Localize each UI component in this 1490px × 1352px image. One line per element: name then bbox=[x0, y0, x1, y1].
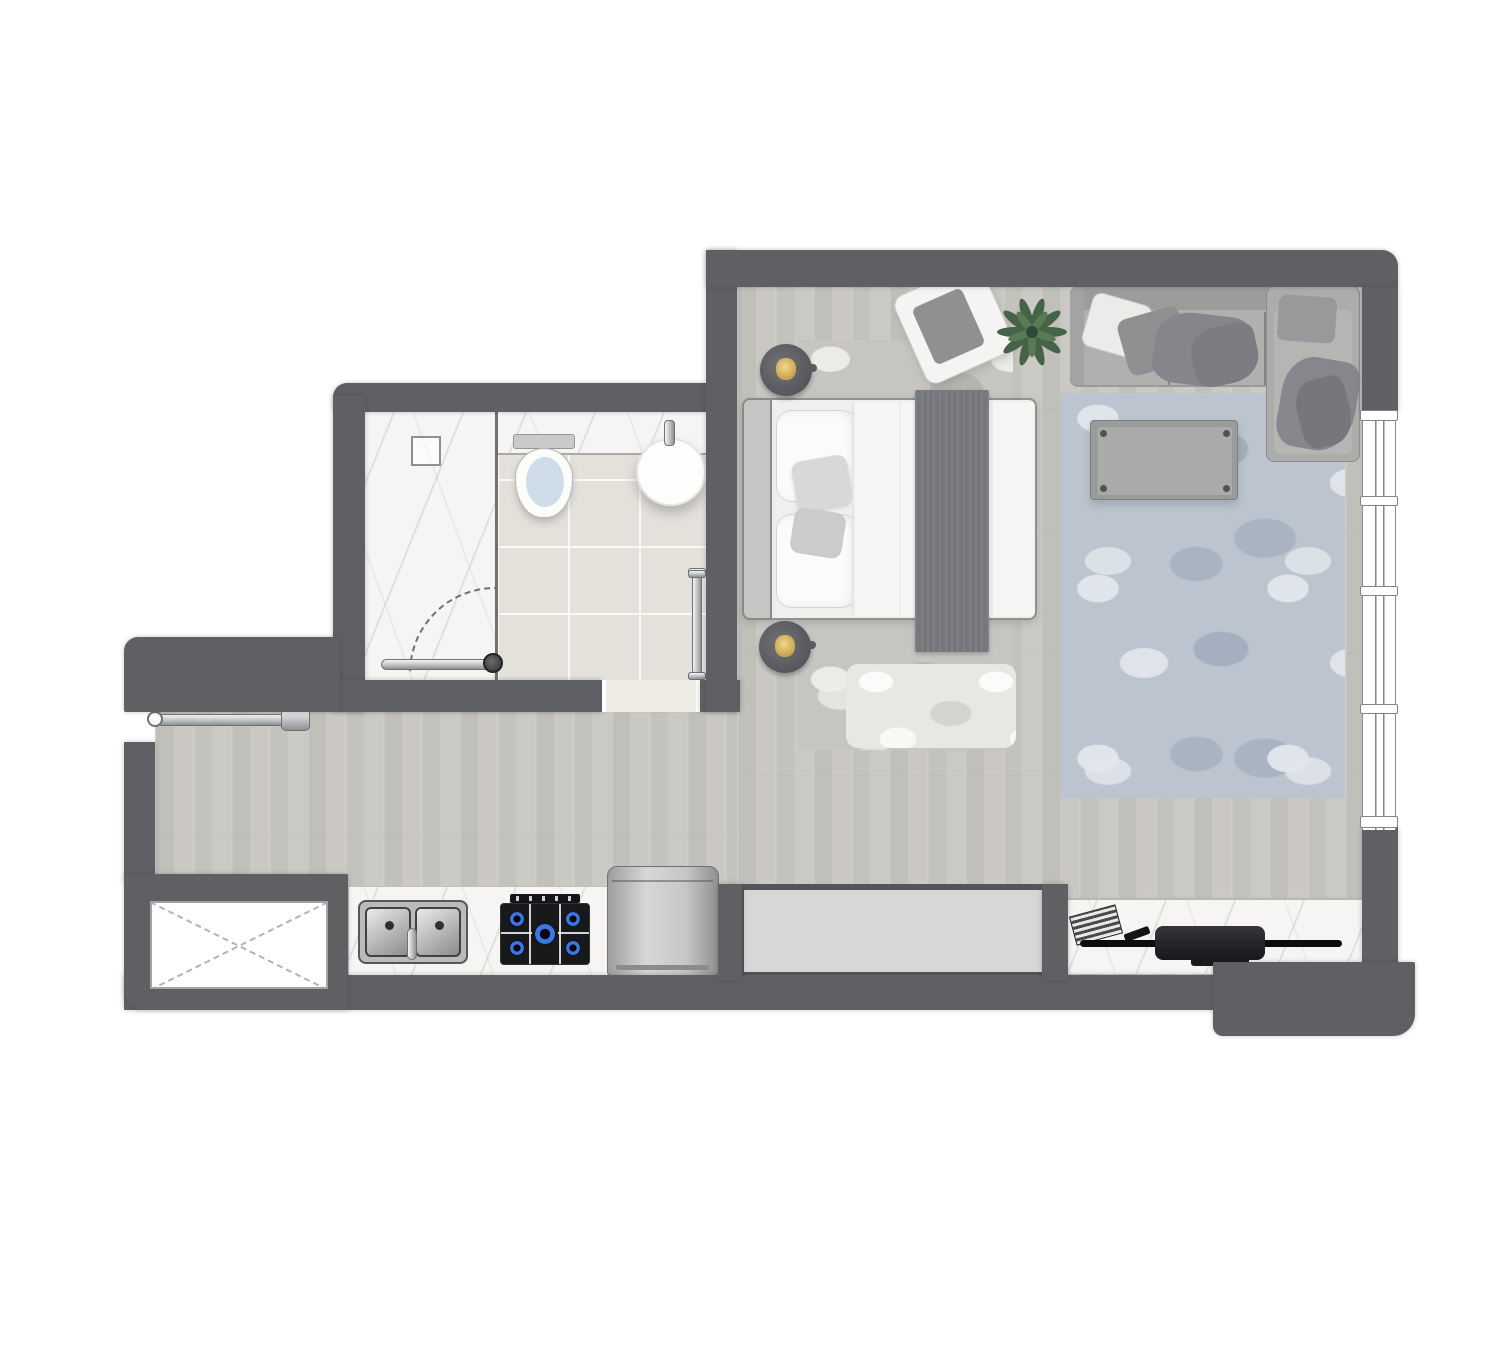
fridge-door-seam bbox=[612, 880, 713, 882]
sink-drain-icon bbox=[435, 921, 444, 930]
wall-left-lower bbox=[124, 742, 155, 882]
potted-plant bbox=[996, 296, 1068, 368]
lamp-bulb-icon bbox=[775, 635, 795, 657]
wall-right-lower bbox=[1362, 826, 1398, 970]
gas-hob bbox=[500, 903, 590, 965]
wall-bathroom-top bbox=[333, 383, 710, 412]
shower-door-bar bbox=[381, 659, 499, 670]
wardrobe-cabinet bbox=[738, 884, 1048, 978]
entry-door-end-cap bbox=[147, 711, 163, 727]
wall-hall-upper-block bbox=[124, 637, 340, 712]
sink-drain-icon bbox=[385, 921, 394, 930]
lamp-handle bbox=[804, 364, 817, 372]
chaise-pillow bbox=[1276, 294, 1337, 344]
bedside-lamp bbox=[759, 621, 811, 673]
hob-control-strip bbox=[510, 894, 580, 903]
armchair-cushion bbox=[911, 287, 986, 366]
lamp-bulb-icon bbox=[776, 358, 796, 380]
wall-bedroom-left bbox=[706, 250, 737, 712]
sheepskin-throw bbox=[846, 664, 1016, 748]
shower-drain-icon bbox=[411, 436, 441, 466]
wall-seg-console-left bbox=[1042, 884, 1068, 980]
fridge-base bbox=[616, 965, 709, 970]
sink-bowl bbox=[415, 907, 461, 957]
washbasin bbox=[636, 438, 706, 506]
wall-right-upper bbox=[1362, 287, 1398, 412]
coffee-table-top bbox=[1098, 427, 1232, 495]
basin-faucet-icon bbox=[664, 420, 675, 446]
bedside-lamp bbox=[760, 344, 812, 396]
burner-icon bbox=[564, 939, 582, 957]
table-bolt bbox=[1223, 485, 1230, 492]
television-body bbox=[1155, 926, 1265, 960]
kitchen-double-sink bbox=[358, 900, 468, 964]
window-mullion bbox=[1360, 816, 1398, 828]
bathroom-door-gap bbox=[602, 680, 700, 712]
window-mullion bbox=[1360, 496, 1398, 506]
refrigerator bbox=[607, 866, 719, 976]
burner-icon bbox=[508, 910, 526, 928]
bed-runner-blanket bbox=[915, 390, 989, 652]
bathroom-door-cap bbox=[688, 570, 706, 578]
table-bolt bbox=[1100, 485, 1107, 492]
lamp-handle bbox=[803, 641, 816, 649]
wall-bathroom-bottom bbox=[340, 680, 602, 712]
burner-icon bbox=[508, 939, 526, 957]
bathroom-door-cap bbox=[688, 672, 706, 680]
wall-seg-fridge-right bbox=[718, 884, 742, 980]
toilet-seat bbox=[526, 457, 564, 507]
sink-faucet-icon bbox=[407, 928, 417, 960]
sink-bowl bbox=[365, 907, 411, 957]
table-bolt bbox=[1100, 430, 1107, 437]
table-bolt bbox=[1223, 430, 1230, 437]
burner-icon bbox=[564, 910, 582, 928]
service-shaft bbox=[150, 901, 328, 989]
toilet bbox=[515, 448, 573, 518]
window-mullion bbox=[1360, 586, 1398, 596]
window-mullion bbox=[1360, 704, 1398, 714]
wall-top bbox=[706, 250, 1398, 287]
headboard bbox=[742, 398, 772, 620]
shower-door-knob bbox=[483, 653, 503, 673]
bathroom-door-leaf bbox=[692, 574, 702, 674]
accent-pillow bbox=[790, 454, 854, 513]
wall-bottom-right-block bbox=[1213, 962, 1415, 1036]
accent-pillow bbox=[789, 506, 848, 560]
window-mullion bbox=[1360, 410, 1398, 421]
burner-icon bbox=[532, 921, 558, 947]
floor-plan bbox=[0, 0, 1490, 1352]
toilet-tank bbox=[513, 434, 575, 449]
window bbox=[1362, 410, 1396, 830]
double-bed bbox=[742, 398, 1037, 620]
coffee-table bbox=[1090, 420, 1238, 500]
bathroom bbox=[365, 412, 710, 680]
